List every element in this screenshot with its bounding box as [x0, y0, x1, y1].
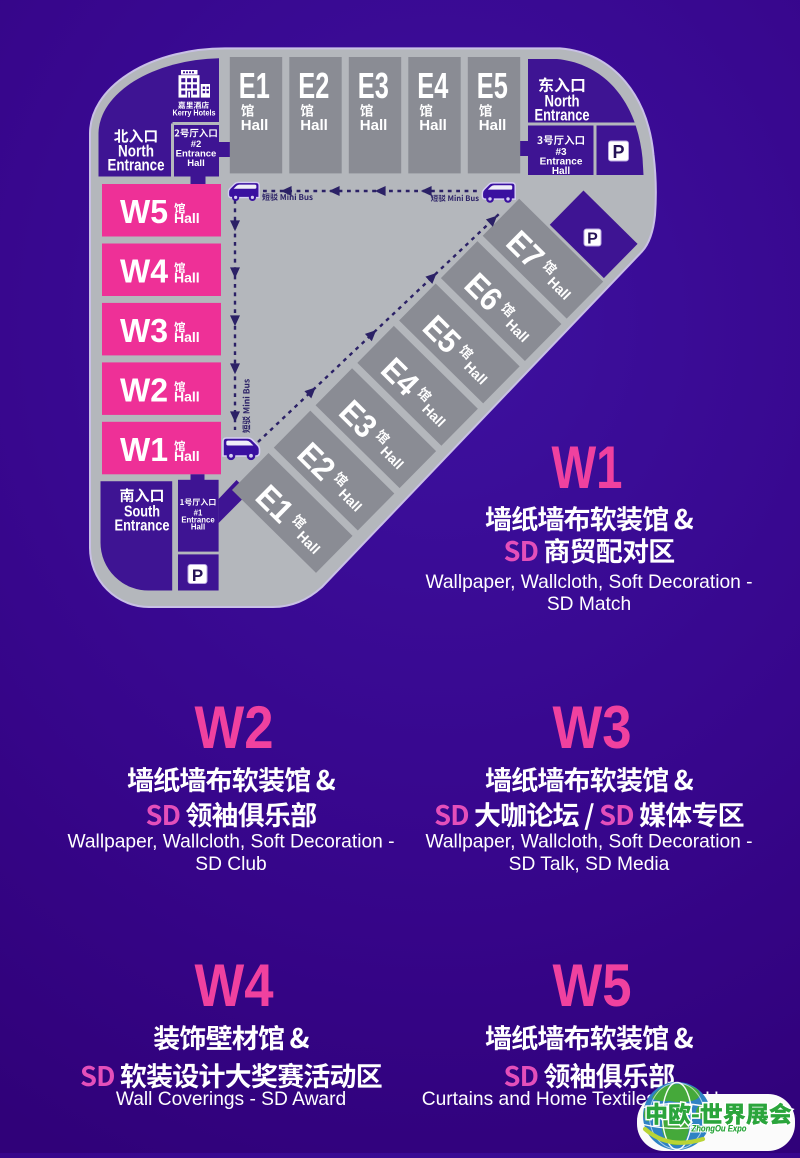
svg-text:Hall: Hall [300, 117, 328, 134]
svg-text:W5: W5 [553, 952, 632, 1019]
svg-text:Hall: Hall [174, 448, 200, 464]
svg-text:E3: E3 [358, 65, 389, 106]
svg-text:Entrance: Entrance [115, 518, 170, 535]
svg-text:E5: E5 [477, 65, 508, 106]
svg-text:E4: E4 [417, 65, 448, 106]
svg-text:Wall Coverings - SD Award: Wall Coverings - SD Award [116, 1089, 346, 1110]
svg-text:Entrance: Entrance [535, 107, 590, 125]
svg-text:W2: W2 [195, 694, 274, 761]
svg-text:W3: W3 [553, 694, 632, 761]
svg-text:ZhongOu Expo: ZhongOu Expo [691, 1124, 747, 1135]
svg-text:W4: W4 [195, 952, 275, 1019]
svg-text:Hall: Hall [174, 210, 200, 226]
svg-text:Wallpaper, Wallcloth, Soft Dec: Wallpaper, Wallcloth, Soft Decoration - [425, 832, 752, 853]
svg-text:E2: E2 [298, 65, 329, 106]
svg-text:Hall: Hall [174, 270, 200, 286]
svg-text:Hall: Hall [191, 523, 205, 532]
svg-text:Hall: Hall [187, 158, 204, 169]
svg-text:Kerry Hotels: Kerry Hotels [173, 109, 216, 118]
svg-text:W3: W3 [120, 312, 168, 349]
svg-text:Hall: Hall [174, 329, 200, 345]
svg-text:Wallpaper, Wallcloth, Soft Dec: Wallpaper, Wallcloth, Soft Decoration - [425, 572, 752, 593]
svg-text:W5: W5 [120, 193, 168, 230]
svg-text:Hall: Hall [360, 117, 388, 134]
svg-text:P: P [587, 231, 598, 248]
svg-text:W2: W2 [120, 371, 168, 408]
svg-text:P: P [612, 142, 624, 162]
svg-text:Entrance: Entrance [108, 157, 165, 175]
svg-text:SD Talk, SD Media: SD Talk, SD Media [509, 854, 670, 875]
svg-text:W1: W1 [120, 431, 168, 468]
svg-text:Hall: Hall [419, 117, 447, 134]
svg-text:Hall: Hall [174, 388, 200, 404]
svg-text:SD Club: SD Club [195, 854, 266, 875]
svg-text:P: P [192, 566, 203, 585]
svg-text:Hall: Hall [479, 117, 507, 134]
svg-text:Hall: Hall [241, 117, 269, 134]
svg-text:SD Match: SD Match [547, 594, 631, 615]
svg-text:E1: E1 [239, 65, 270, 106]
svg-text:W1: W1 [552, 434, 623, 501]
svg-text:Wallpaper, Wallcloth, Soft Dec: Wallpaper, Wallcloth, Soft Decoration - [67, 832, 394, 853]
svg-text:W4: W4 [120, 253, 169, 290]
svg-text:Hall: Hall [552, 166, 571, 177]
